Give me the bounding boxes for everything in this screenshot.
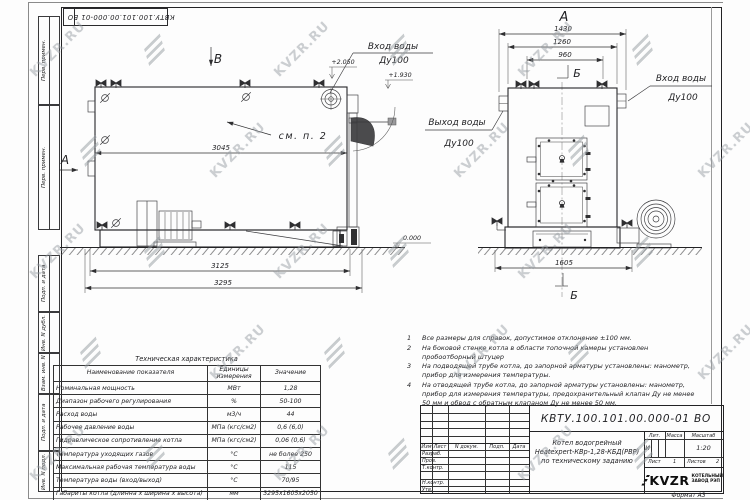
- note-item: 4На отводящей трубе котла, до запорной а…: [398, 381, 702, 407]
- table-row: Расход водым3/ч44: [54, 408, 321, 421]
- row-value: 3295х1605х2050: [261, 487, 321, 500]
- table-row: Диапазон рабочего регулирования%50-100: [54, 395, 321, 408]
- row-unit: МПа (кгс/см2): [208, 421, 261, 434]
- col-header-name: Наименование показателя: [54, 366, 208, 382]
- tb-line: [421, 486, 529, 487]
- side-view: 3045 3125 3295 +2.050 +1.930 0.000 Вход …: [59, 42, 433, 293]
- drawing-number: КВТУ.100.101.00.000-01 ВО: [529, 406, 723, 431]
- table-row: Температура воды (вход/выход)°С70/95: [54, 474, 321, 487]
- note-text: На подводящей трубе котла, до запорной а…: [422, 362, 702, 380]
- row-utv: Утв.: [422, 487, 433, 493]
- lit-value: И: [644, 444, 651, 452]
- row-unit: °С: [208, 461, 261, 474]
- note-text: На отводящей трубе котла, до запорной ар…: [422, 381, 702, 407]
- elev-2050: +2.050: [331, 59, 354, 66]
- massa-label: Масса: [665, 433, 684, 439]
- brand-sub2: ЗАВОД РЭП: [691, 480, 723, 485]
- row-value: 0,6 (6,0): [261, 421, 321, 434]
- dim-1605: 1605: [555, 259, 573, 267]
- view-label-a-front: А: [559, 10, 569, 25]
- document-name: Котел водогрейный Heatexpert-КВр-1,28-КБ…: [530, 431, 644, 493]
- row-value: 1,28: [261, 382, 321, 395]
- brand-subtitle: КОТЕЛЬНЫЙ ЗАВОД РЭП: [691, 475, 723, 485]
- tech-table-title: Техническая характеристика: [53, 355, 320, 363]
- tech-table-header: Наименование показателя Единицы измерени…: [54, 366, 321, 382]
- side-inlet-label: Вход воды: [368, 42, 418, 52]
- row-name: Расход воды: [54, 408, 208, 421]
- row-unit: °С: [208, 474, 261, 487]
- front-view: 1430 1260 960 1605 А Б Б Выход воды Ду10…: [425, 10, 712, 302]
- see-note-label: см. п. 2: [279, 131, 328, 142]
- table-row: Габариты котла (длинна х ширина х высота…: [54, 487, 321, 500]
- row-unit: МПа (кгс/см2): [208, 434, 261, 447]
- doc-line1: Котел водогрейный: [530, 439, 644, 448]
- col-header-value: Значение: [261, 366, 321, 382]
- col-podp: Подп.: [485, 444, 509, 450]
- dim-1430: 1430: [554, 25, 572, 33]
- row-tkontr: Т.контр.: [422, 465, 444, 471]
- listov-label: Листов: [687, 459, 706, 465]
- dim-3045: 3045: [212, 144, 230, 152]
- tb-line: [644, 457, 723, 458]
- dim-3125: 3125: [211, 262, 229, 270]
- tb-line: [644, 439, 723, 440]
- row-name: Гидравлическое сопротивление котла: [54, 434, 208, 447]
- row-name: Температура воды (вход/выход): [54, 474, 208, 487]
- doc-line2: Heatexpert-КВр-1,28-КБД(РВР): [530, 448, 644, 457]
- note-text: Все размеры для справок, допустимое откл…: [422, 334, 702, 343]
- row-value: 50-100: [261, 395, 321, 408]
- note-item: 3На подводящей трубе котла, до запорной …: [398, 362, 702, 380]
- note-number: 2: [398, 344, 422, 362]
- note-item: 1Все размеры для справок, допустимое отк…: [398, 334, 702, 343]
- row-name: Максимальная рабочая температура воды: [54, 461, 208, 474]
- dim-960: 960: [558, 51, 572, 59]
- table-row: Номинальная мощностьМВт1,28: [54, 382, 321, 395]
- row-name: Температура уходящих газов: [54, 447, 208, 460]
- company-logo: KVZR КОТЕЛЬНЫЙ ЗАВОД РЭП: [644, 467, 723, 493]
- row-unit: °С: [208, 447, 261, 460]
- row-name: Диапазон рабочего регулирования: [54, 395, 208, 408]
- row-value: 44: [261, 408, 321, 421]
- brand-name: KVZR: [649, 473, 689, 488]
- row-nkontr: Н.контр.: [422, 480, 444, 486]
- tb-line: [421, 421, 529, 422]
- masshtab-label: Масштаб: [684, 433, 723, 439]
- tb-line: [658, 439, 659, 457]
- format-label: Формат А3: [655, 492, 722, 499]
- row-unit: %: [208, 395, 261, 408]
- row-razrab: Разраб.: [422, 451, 442, 457]
- table-row: Температура уходящих газов°Сне более 250: [54, 447, 321, 460]
- row-unit: МВт: [208, 382, 261, 395]
- side-inlet-dn: Ду100: [378, 56, 409, 66]
- section-label-b-bottom: Б: [570, 289, 578, 302]
- title-block: КВТУ.100.101.00.000-01 ВО Изм Лист N док…: [420, 405, 724, 494]
- drawing-sheet: Перв. примен. Перв. примен. Подп. и дата…: [0, 0, 750, 500]
- table-row: Гидравлическое сопротивление котлаМПа (к…: [54, 434, 321, 447]
- tb-line: [421, 457, 529, 458]
- row-name: Номинальная мощность: [54, 382, 208, 395]
- row-name: Рабочее давление воды: [54, 421, 208, 434]
- row-value: 0,06 (0,6): [261, 434, 321, 447]
- row-value: не более 250: [261, 447, 321, 460]
- note-number: 1: [398, 334, 422, 343]
- col-data: Дата: [509, 444, 529, 450]
- front-inlet-label: Вход воды: [656, 74, 706, 84]
- lit-label: Лит.: [644, 433, 665, 439]
- tb-line: [421, 428, 529, 429]
- col-izm: Изм: [421, 444, 432, 450]
- row-name: Габариты котла (длинна х ширина х высота…: [54, 487, 208, 500]
- section-label-a-side: А: [60, 153, 69, 167]
- note-number: 4: [398, 381, 422, 407]
- row-value: 115: [261, 461, 321, 474]
- listov-value: 2: [716, 459, 719, 465]
- dim-1260: 1260: [553, 38, 571, 46]
- dim-3295: 3295: [214, 279, 232, 287]
- col-list: Лист: [432, 444, 448, 450]
- elev-0000: 0.000: [403, 235, 421, 242]
- list-label: Лист: [648, 459, 661, 465]
- note-item: 2На боковой стенке котла в области топоч…: [398, 344, 702, 362]
- scale-value: 1:20: [684, 444, 723, 452]
- list-value: 1: [673, 459, 676, 465]
- row-unit: м3/ч: [208, 408, 261, 421]
- front-outlet-dn: Ду100: [443, 139, 474, 149]
- table-row: Рабочее давление водыМПа (кгс/см2)0,6 (6…: [54, 421, 321, 434]
- tb-line: [421, 413, 529, 414]
- row-value: 70/95: [261, 474, 321, 487]
- front-inlet-dn: Ду100: [667, 93, 698, 103]
- table-row: Максимальная рабочая температура воды°С1…: [54, 461, 321, 474]
- tb-line: [421, 436, 529, 437]
- elev-1930: +1.930: [388, 72, 411, 79]
- front-outlet-label: Выход воды: [428, 118, 485, 128]
- tb-line: [651, 439, 652, 457]
- row-prov: Пров.: [422, 458, 437, 464]
- row-unit: мм: [208, 487, 261, 500]
- section-label-b-top: Б: [573, 67, 581, 80]
- tech-table: Наименование показателя Единицы измерени…: [53, 365, 321, 500]
- col-ndoc: N докум.: [448, 444, 485, 450]
- view-label-v: В: [214, 52, 222, 66]
- note-text: На боковой стенке котла в области топочн…: [422, 344, 702, 362]
- tb-line: [421, 471, 529, 472]
- doc-line3: по техническому заданию: [530, 457, 644, 466]
- col-header-unit: Единицы измерения: [208, 366, 261, 382]
- note-number: 3: [398, 362, 422, 380]
- notes-list: 1Все размеры для справок, допустимое отк…: [398, 334, 702, 408]
- tech-characteristics: Техническая характеристика Наименование …: [53, 355, 320, 500]
